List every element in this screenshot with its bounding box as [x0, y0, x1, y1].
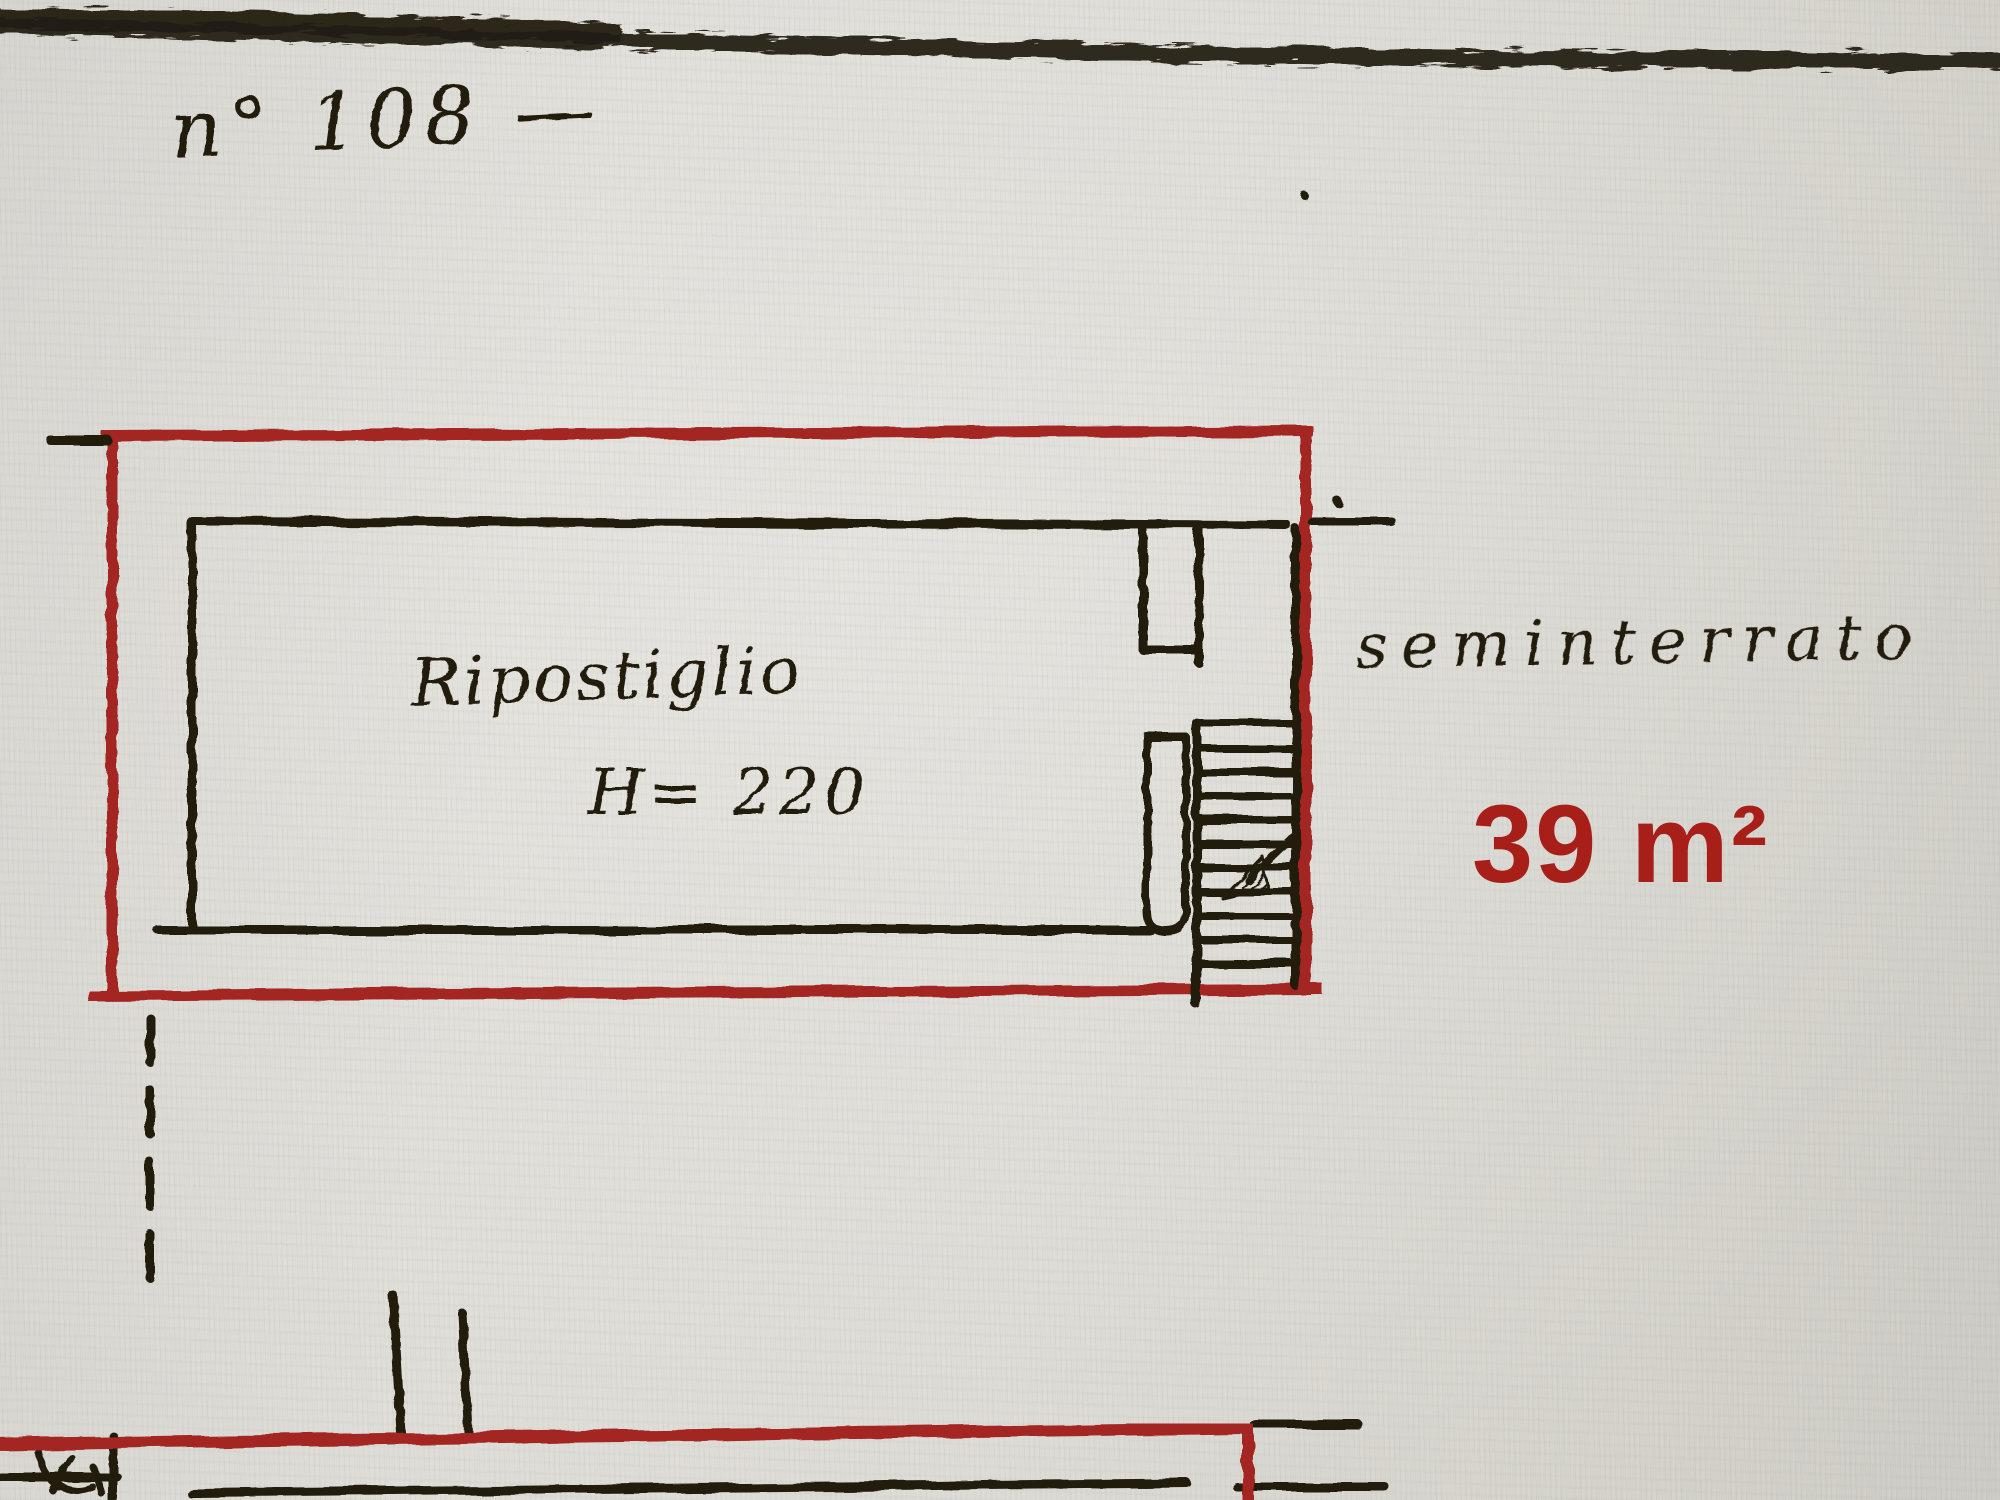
scribble: [94, 1468, 102, 1494]
lower-unit-outline-top: [0, 1428, 1248, 1444]
room-wall-top: [192, 521, 1287, 525]
page-edge-band: [0, 18, 2000, 62]
annotations: n° 108 — Ripostiglio H= 220 seminterrato: [168, 62, 1926, 830]
plan-number-label: n° 108 —: [168, 62, 603, 177]
ink-speck: [1301, 192, 1309, 200]
area-value-label: 39 m²: [1472, 783, 1769, 906]
lower-unit-wall-top: [191, 1483, 1187, 1493]
floorplan-drawing: n° 108 — Ripostiglio H= 220 seminterrato…: [0, 0, 2000, 1500]
unit-outline-top: [107, 431, 1307, 436]
unit-outline-bottom: [94, 989, 1317, 996]
vent-tick-right: [462, 1313, 468, 1432]
unit-outline-red: [94, 431, 1317, 996]
room-walls: [0, 192, 1392, 1500]
stair-parapet: [1147, 737, 1186, 931]
ink-speck: [1332, 496, 1342, 506]
vent-tick-left: [393, 1295, 401, 1433]
wall-recess: [1143, 527, 1197, 650]
scribble: [58, 1484, 92, 1490]
scanned-floorplan-page: n° 108 — Ripostiglio H= 220 seminterrato…: [0, 0, 2000, 1500]
floor-name-label: seminterrato: [1355, 600, 1926, 683]
room-height-label: H= 220: [587, 756, 870, 830]
room-name-label: Ripostiglio: [409, 631, 804, 722]
